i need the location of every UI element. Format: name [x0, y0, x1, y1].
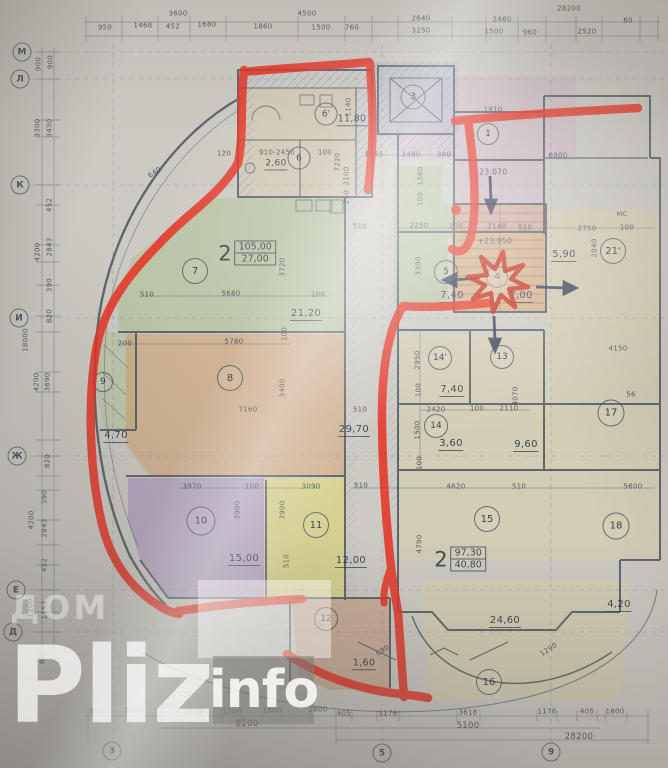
watermark-white-box: [198, 580, 331, 658]
marker-horizontal-upper: [455, 108, 638, 121]
watermark-dom-text: ДОМ: [10, 588, 109, 627]
watermark-info-text: info: [209, 660, 318, 720]
marker-dot: [451, 205, 461, 215]
marker-top-edge: [244, 62, 369, 72]
marker-center-spine: [382, 303, 488, 697]
marker-right-drop: [368, 63, 373, 190]
watermark-info-box: info: [213, 656, 314, 724]
floorplan-photo: 6'63175421'8914'131417101115181216МЛКИЖЕ…: [0, 0, 668, 768]
marker-vertical-stair: [452, 120, 475, 251]
marker-left-arc: [91, 70, 244, 614]
watermark-brand-text: Pliz: [8, 628, 212, 745]
